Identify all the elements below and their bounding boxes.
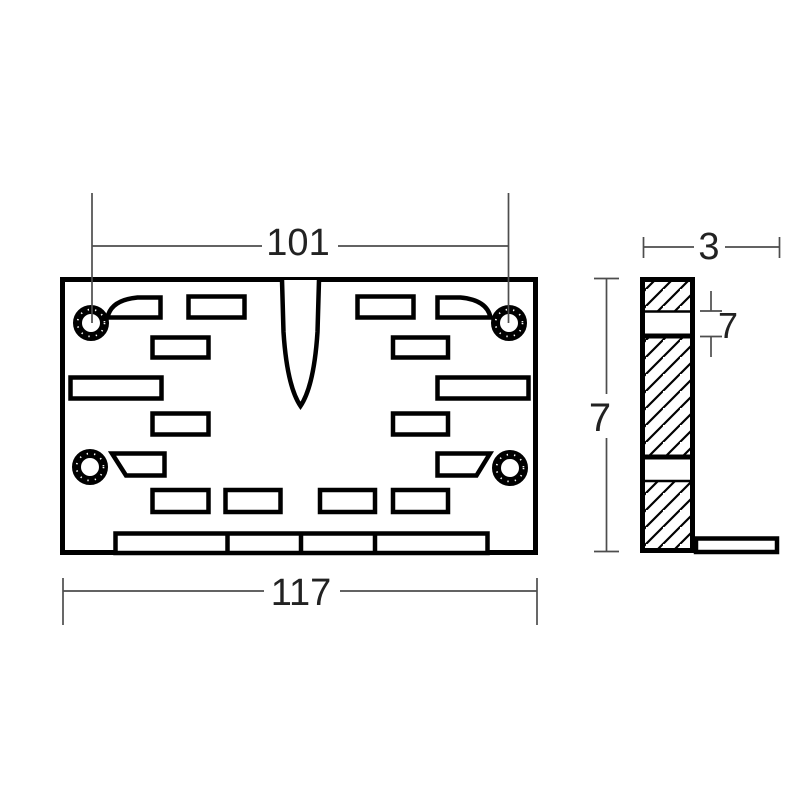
slot-row3-right-long: [438, 378, 529, 399]
dim-7-band-label: 7: [718, 305, 738, 346]
slot-row4-left: [153, 414, 209, 435]
slot-row5-2: [226, 490, 281, 512]
slot-row3-left-long: [71, 378, 162, 399]
dim-7-height-label: 7: [589, 396, 611, 440]
drawing-canvas: 101 117 3 7 7: [0, 0, 800, 800]
slot-row5-1: [153, 490, 209, 512]
slot-row4-right: [393, 414, 448, 435]
slot-row2-left: [153, 338, 209, 358]
bottom-bar: [116, 534, 488, 554]
slot-top-right-rect: [358, 297, 414, 318]
technical-drawing: 101 117 3 7 7: [0, 0, 800, 800]
slot-top-left-rect: [189, 297, 245, 318]
dim-3-label: 3: [698, 226, 719, 268]
dim-117-label: 117: [271, 572, 332, 614]
side-view: [640, 280, 777, 553]
slot-row2-right: [393, 338, 448, 358]
slot-row5-3: [320, 490, 375, 512]
front-view: [63, 280, 536, 554]
dim-101-label: 101: [266, 222, 329, 264]
slot-row5-4: [393, 490, 448, 512]
section-foot: [696, 539, 777, 553]
